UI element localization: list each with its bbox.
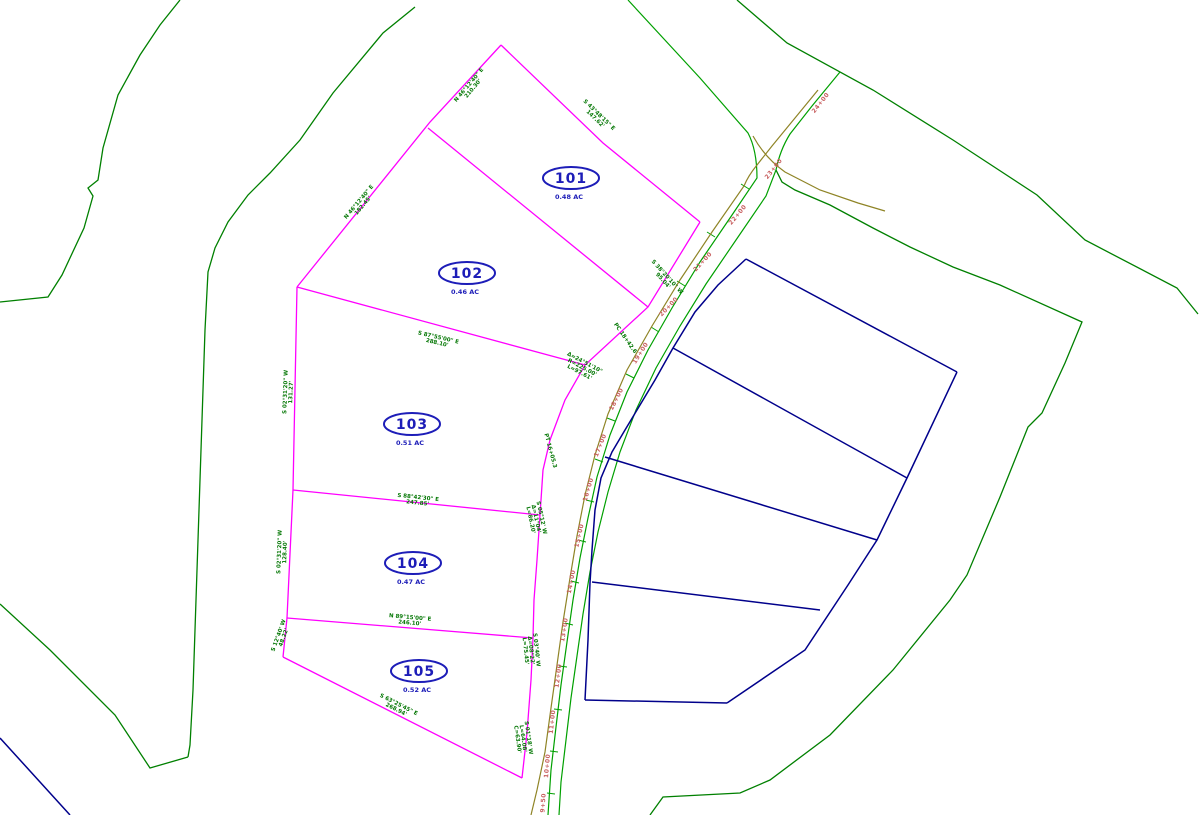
bluelots-bottom-edge	[585, 700, 727, 703]
boundary-west-inner	[188, 7, 415, 757]
bearing-label: S 02°31'20" W128.40'	[276, 530, 289, 574]
bearing-label: S 38°20'10" W95.04'	[646, 259, 684, 299]
lot-number-label: 105	[403, 664, 435, 680]
navy-lot-lines	[0, 259, 957, 815]
bearing-label: N 46°12'40" E182.45'	[343, 184, 379, 224]
road-edges	[547, 0, 840, 815]
station-label: 15+00	[573, 523, 585, 548]
navy-southwest-line	[0, 738, 70, 815]
bearing-label: S 03°40' WΔ=08°22'L=75.45'	[520, 633, 540, 668]
easement-lines	[531, 90, 885, 815]
station-label: 12+00	[554, 663, 564, 688]
bearing-label: PC 18+42.6	[612, 322, 638, 355]
lot-area-label: 0.51 AC	[396, 439, 424, 447]
road-station-labels: 24+0023+0022+0021+0020+0019+0018+0017+00…	[539, 91, 831, 813]
bluelots-divider-b	[605, 457, 877, 540]
lot-number-label: 101	[555, 171, 587, 187]
station-label: 17+00	[593, 433, 609, 458]
boundary-east-parcel	[650, 170, 1082, 815]
bearing-label: S 02°31'20" W131.27'	[282, 370, 295, 414]
station-label: 21+00	[692, 251, 714, 273]
station-label: 16+00	[582, 477, 596, 502]
road-west-edge	[548, 0, 757, 815]
bluelots-divider-a	[673, 348, 907, 478]
magenta-lot-lines	[283, 45, 700, 778]
lot-number-label: 103	[396, 417, 428, 433]
station-label: 18+00	[608, 387, 625, 412]
bearing-label: S 01°18' WL=64.08'C=63.90'	[512, 721, 534, 757]
bearing-label: S 43°48'15" E147.62'	[578, 99, 616, 136]
bearing-label: N 46°12'40" E210.30'	[453, 67, 489, 107]
bearing-distance-labels: N 46°12'40" E210.30'S 43°48'15" E147.62'…	[270, 67, 683, 756]
bluelots-divider-c	[592, 582, 820, 610]
bluelots-frontage	[585, 259, 746, 700]
lot-block-west-edge	[283, 287, 297, 657]
lot-block-northeast-edge	[501, 45, 700, 222]
bearing-label: S 12°40' W48.22'	[270, 619, 292, 655]
plat-drawing-canvas: 1010.48 AC1020.46 AC1030.51 AC1040.47 AC…	[0, 0, 1200, 815]
station-label: 9+50	[539, 793, 547, 813]
plat-svg: 1010.48 AC1020.46 AC1030.51 AC1040.47 AC…	[0, 0, 1200, 815]
lot-area-label: 0.46 AC	[451, 288, 479, 296]
boundary-southwest-outer	[0, 604, 188, 768]
boundary-west-outer	[0, 0, 180, 302]
bearing-label: N 89°15'00" E246.10'	[388, 613, 432, 628]
boundary-northeast-outer	[737, 0, 1198, 314]
lot-number-label: 102	[451, 266, 483, 282]
lot-area-label: 0.48 AC	[555, 193, 583, 201]
bearing-label: S 05°12' WΔ=11°04'L=86.20'	[524, 501, 548, 537]
bearing-label: S 87°55'00" E288.10'	[416, 330, 460, 351]
bluelots-top-edge	[746, 259, 957, 372]
bluelots-right-edge	[727, 372, 957, 703]
bearing-label: Δ=24°51'10"R=225.00'L=97.61'	[561, 351, 604, 384]
lot-area-label: 0.52 AC	[403, 686, 431, 694]
lot-number-label: 104	[397, 556, 429, 572]
divider-102-103	[297, 287, 585, 365]
lot-area-label: 0.47 AC	[397, 578, 425, 586]
